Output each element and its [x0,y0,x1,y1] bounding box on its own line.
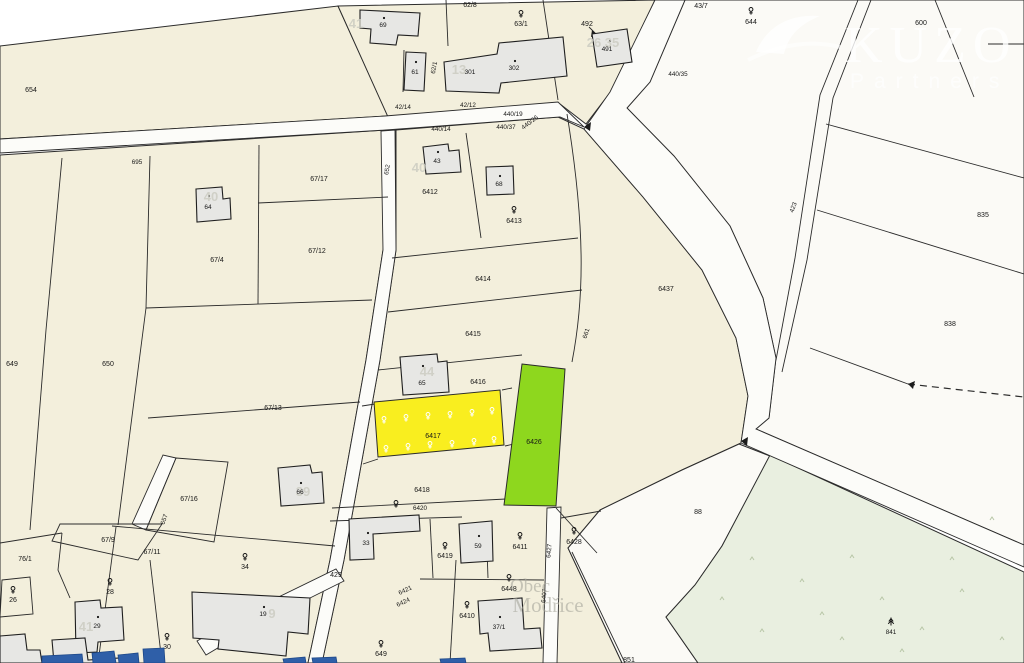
house-number: 40 [412,160,426,175]
parcel-label-6410: 6410 [459,613,475,620]
parcel-label-841: 841 [886,629,897,636]
building-label-301: 301 [465,69,476,76]
parcel-label-67-13: 67/13 [264,405,282,412]
brand-name: KUZO [845,17,1017,74]
building-label-64: 64 [204,204,212,211]
parcel-label-67-11: 67/11 [144,549,161,556]
parcel-label-67-16: 67/16 [180,496,198,503]
parcel-label-28: 28 [106,589,114,596]
parcel-label-6417: 6417 [425,433,441,440]
parcel-label-649b: 649 [375,651,387,658]
water-feature [440,658,466,663]
parcel-label-6412: 6412 [422,189,438,196]
parcel-label-88: 88 [694,509,702,516]
parcel-label-835: 835 [977,212,989,219]
parcel-label-6426: 6426 [526,439,542,446]
house-number: 41 [79,619,93,634]
parcel-label-62-8: 62/8 [463,2,477,9]
house-number: 41 [349,16,363,31]
parcel-label-851: 851 [623,657,635,663]
road-label-42-12: 42/12 [460,102,476,109]
water-feature [118,653,139,663]
cadastral-map: 41 13 26 35 40 40 44 39 41 9 654 695 67/… [0,0,1024,663]
parcel-label-649: 649 [6,361,18,368]
building-label-302: 302 [509,65,520,72]
parcel-label-650: 650 [102,361,114,368]
building-label-65: 65 [418,380,426,387]
building-label-69: 69 [379,22,387,29]
parcel-label-6411: 6411 [512,544,527,551]
parcel-label-67-4: 67/4 [210,257,224,264]
building-label-43: 43 [433,158,441,165]
parcel-label-838: 838 [944,321,956,328]
parcel-label-695: 695 [132,159,143,166]
house-number: 9 [268,606,275,621]
parcel-label-6420: 6420 [413,505,428,512]
parcel-label-6418: 6418 [414,487,430,494]
building-label-19: 19 [259,611,267,618]
parcel-label-6413: 6413 [506,218,522,225]
building-label-491: 491 [602,46,613,53]
parcel-label-63-1: 63/1 [514,21,528,28]
base-parcels [0,0,1024,663]
brand-subtitle: Partners [850,70,1009,93]
parcel-label-6416: 6416 [470,379,486,386]
road-label-6427: 6427 [545,543,553,558]
water-feature [92,651,116,663]
parcel-label-429: 429 [330,572,342,579]
house-number: 40 [204,189,218,204]
building-label-33: 33 [362,540,370,547]
road-label-440-19: 440/19 [503,111,523,118]
building-label-66: 66 [296,489,304,496]
parcel-label-6437: 6437 [658,286,674,293]
road-label-42-14: 42/14 [395,104,411,111]
parcel-label-644: 644 [745,19,757,26]
water-feature [42,654,83,663]
house-number: 44 [420,364,435,379]
parcel-label-26: 26 [9,597,17,604]
building-label-59: 59 [474,543,482,550]
parcel-label-6414: 6414 [475,276,491,283]
building-label-37-1: 37/1 [493,624,506,631]
road-label-440-35: 440/35 [668,71,688,78]
parcel-label-6419: 6419 [437,553,453,560]
building-59 [459,521,493,563]
parcel-label-6415: 6415 [465,331,481,338]
water-feature [143,648,165,663]
parcel-label-43-7: 43/7 [694,3,708,10]
parcel-label-67-12: 67/12 [308,248,326,255]
parcel-label-67-9: 67/9 [101,537,115,544]
building-label-61: 61 [411,69,419,76]
parcel-label-6428: 6428 [566,539,582,546]
parcel-label-492: 492 [581,21,593,28]
road-label-440-14: 440/14 [431,126,451,133]
cadastral-map-viewport[interactable]: 41 13 26 35 40 40 44 39 41 9 654 695 67/… [0,0,1024,663]
municipality-watermark-line2: Modřice [512,593,583,617]
road-label-440-37: 440/37 [496,124,516,131]
parcel-label-34: 34 [241,564,249,571]
parcel-6417-highlight-yellow [374,390,504,457]
parcel-label-67-17: 67/17 [310,176,328,183]
parcel-label-654: 654 [25,87,37,94]
building-label-29: 29 [93,623,101,630]
parcel-label-76-1: 76/1 [18,556,32,563]
water-feature [312,657,337,663]
building-label-68: 68 [495,181,503,188]
